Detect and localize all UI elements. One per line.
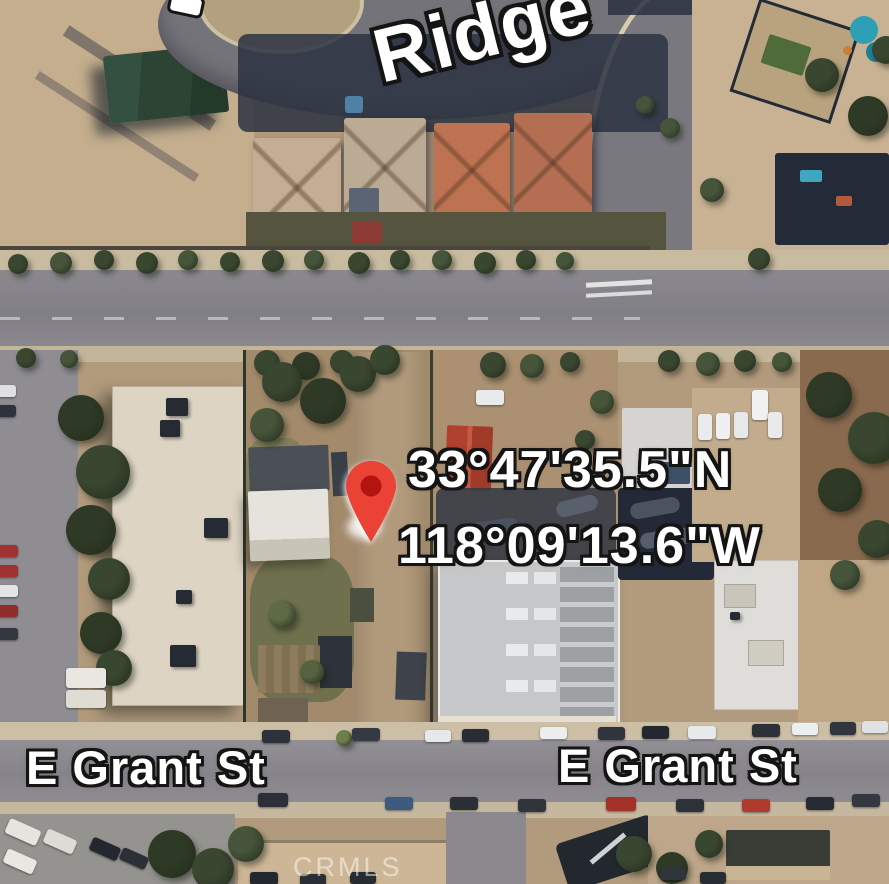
- parked-car: [606, 797, 636, 811]
- parked-car: [698, 414, 712, 440]
- parked-car: [852, 794, 880, 807]
- tree: [220, 252, 240, 272]
- parked-car: [734, 412, 748, 438]
- parked-car: [742, 799, 770, 812]
- tree: [848, 96, 888, 136]
- tree: [300, 660, 324, 684]
- parked-car: [0, 565, 18, 577]
- tree: [748, 248, 770, 270]
- tree: [636, 96, 654, 114]
- tree: [695, 830, 723, 858]
- parked-car: [66, 668, 106, 688]
- tree: [136, 252, 158, 274]
- parked-car: [352, 728, 380, 741]
- parked-car: [752, 724, 780, 737]
- street-label-e-grant-st-right: E Grant St: [558, 738, 798, 793]
- parked-car: [830, 722, 856, 735]
- parked-car: [258, 793, 288, 807]
- tree: [76, 445, 130, 499]
- parked-car: [0, 405, 16, 417]
- parked-car: [262, 730, 290, 743]
- street-label-e-grant-st-left: E Grant St: [26, 740, 266, 795]
- tree: [50, 252, 72, 274]
- tree: [616, 836, 652, 872]
- tree: [262, 362, 302, 402]
- rooftop-unit: [160, 420, 180, 437]
- tree: [94, 250, 114, 270]
- coordinate-latitude: 33°47'35.5"N: [408, 440, 732, 500]
- tree: [148, 830, 196, 878]
- tree: [696, 352, 720, 376]
- tree: [556, 252, 574, 270]
- parked-car: [862, 721, 888, 733]
- parked-car: [716, 413, 730, 439]
- tree: [806, 372, 852, 418]
- tree: [830, 560, 860, 590]
- parked-car: [700, 872, 726, 884]
- parked-car: [806, 797, 834, 810]
- parked-car: [425, 730, 451, 742]
- tree: [60, 350, 78, 368]
- tree: [390, 250, 410, 270]
- parked-car: [88, 837, 121, 862]
- tree: [250, 408, 284, 442]
- parked-car: [42, 828, 77, 855]
- satellite-map[interactable]: Ridge 33°47'35.5"N 118°09'13.6"W E Grant…: [0, 0, 889, 884]
- tree: [370, 345, 400, 375]
- location-pin[interactable]: [342, 459, 400, 547]
- tree: [660, 118, 680, 138]
- parked-car: [0, 545, 18, 557]
- tree: [192, 848, 234, 884]
- parked-car: [66, 690, 106, 708]
- tree: [66, 505, 116, 555]
- rooftop-unit: [176, 590, 192, 604]
- parked-car: [4, 818, 42, 846]
- tree: [734, 350, 756, 372]
- parked-car: [0, 585, 18, 597]
- parked-car: [250, 872, 278, 884]
- tree: [228, 826, 264, 862]
- tree: [268, 600, 296, 628]
- tree: [8, 254, 28, 274]
- parked-car: [768, 412, 782, 438]
- tree: [58, 395, 104, 441]
- parked-car: [0, 385, 16, 397]
- tree: [474, 252, 496, 274]
- parked-car: [0, 628, 18, 640]
- tree: [772, 352, 792, 372]
- tree: [80, 612, 122, 654]
- tree: [520, 354, 544, 378]
- parked-car: [752, 390, 768, 420]
- tree: [590, 390, 614, 414]
- parked-car: [518, 799, 546, 812]
- tree: [658, 350, 680, 372]
- tree: [560, 352, 580, 372]
- parked-car: [450, 797, 478, 810]
- tree: [304, 250, 324, 270]
- tree: [480, 352, 506, 378]
- coordinate-longitude: 118°09'13.6"W: [398, 516, 761, 576]
- parked-car: [792, 723, 818, 735]
- tree: [262, 250, 284, 272]
- rooftop-unit: [204, 518, 228, 538]
- tree: [348, 252, 370, 274]
- parked-car: [0, 605, 18, 617]
- crmls-watermark: CRMLS: [293, 852, 403, 883]
- tree: [848, 412, 889, 464]
- tree: [858, 520, 889, 558]
- tree: [432, 250, 452, 270]
- tree: [872, 36, 889, 64]
- tree: [16, 348, 36, 368]
- parked-car: [676, 799, 704, 812]
- parked-car: [660, 868, 686, 880]
- tree: [336, 730, 352, 746]
- tree: [700, 178, 724, 202]
- parked-car: [2, 848, 37, 875]
- rooftop-unit: [170, 645, 196, 667]
- parked-car: [462, 729, 489, 742]
- parked-car: [385, 797, 413, 810]
- tree: [805, 58, 839, 92]
- tree: [88, 558, 130, 600]
- rooftop-unit: [166, 398, 188, 416]
- parked-car: [119, 847, 150, 870]
- tree: [516, 250, 536, 270]
- tree: [178, 250, 198, 270]
- tree: [818, 468, 862, 512]
- tree: [300, 378, 346, 424]
